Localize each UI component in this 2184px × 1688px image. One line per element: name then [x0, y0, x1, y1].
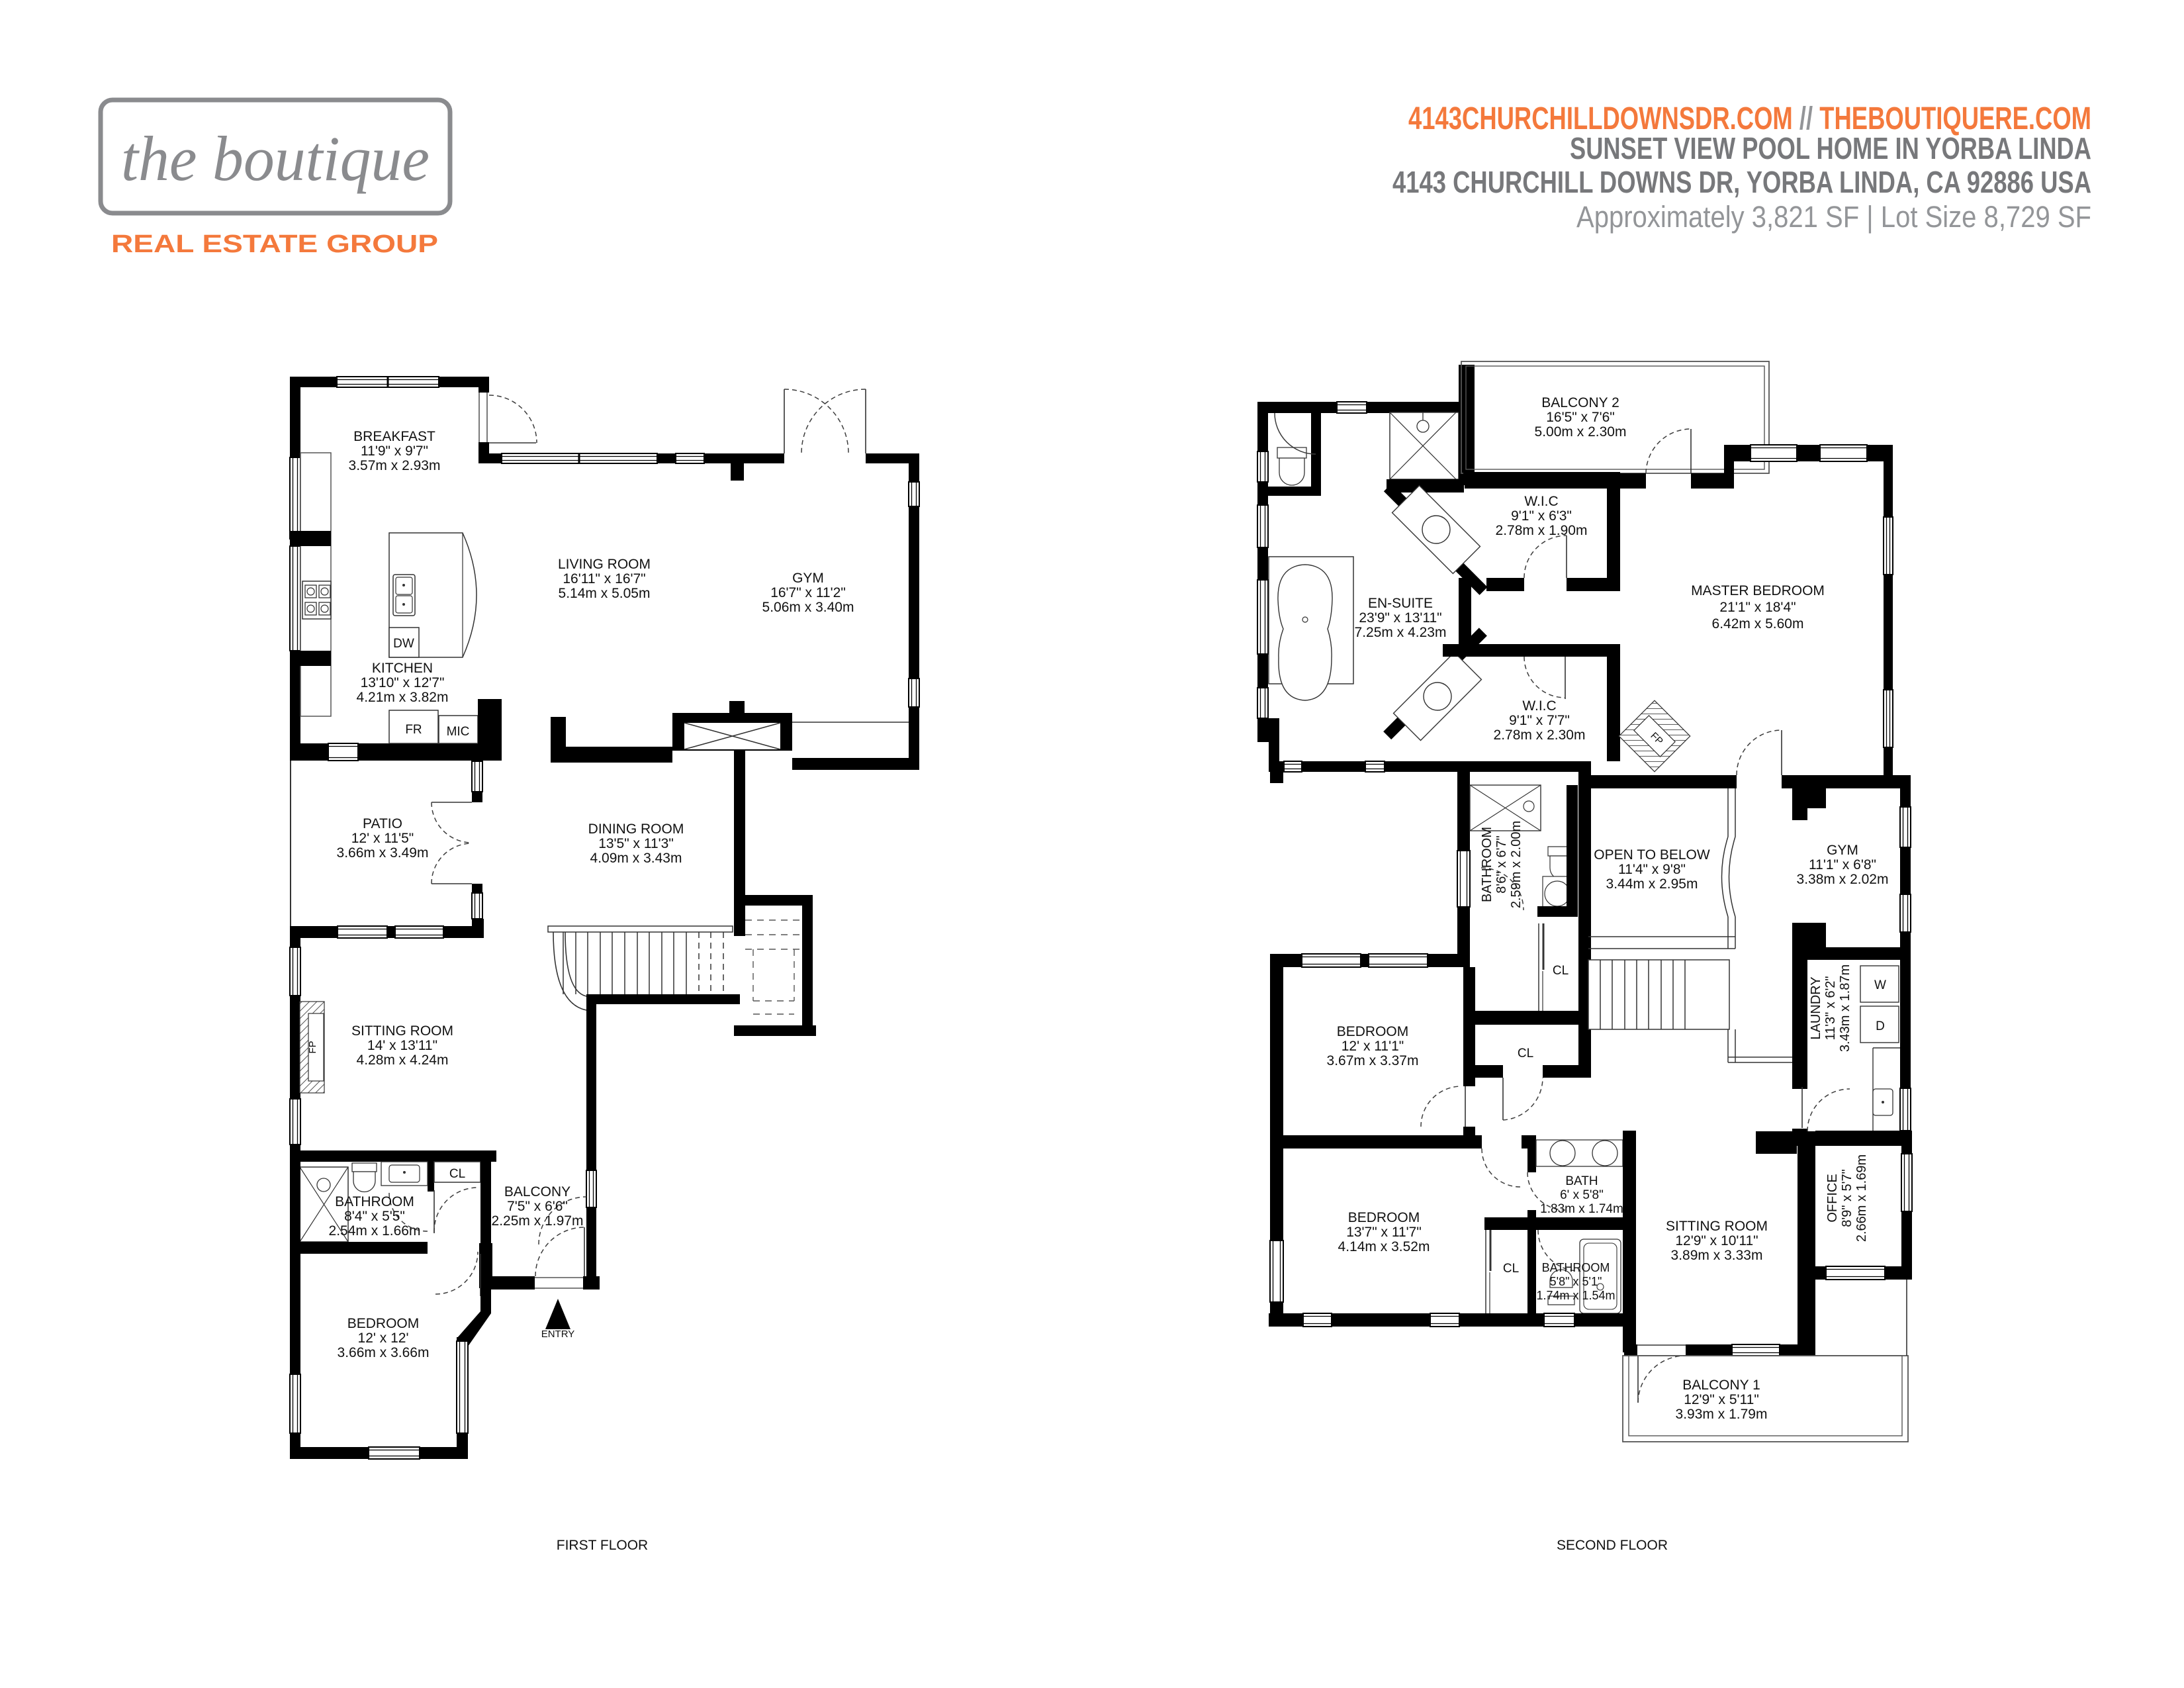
svg-text:GYM: GYM — [1827, 843, 1858, 858]
svg-text:3.67m x 3.37m: 3.67m x 3.37m — [1327, 1053, 1419, 1068]
svg-text:BEDROOM: BEDROOM — [1337, 1024, 1409, 1039]
svg-text:2.59m x 2.00m: 2.59m x 2.00m — [1509, 821, 1524, 908]
svg-text:4.21m x 3.82m: 4.21m x 3.82m — [357, 690, 449, 705]
svg-text:MIC: MIC — [447, 725, 470, 739]
svg-text:16'5" x 7'6": 16'5" x 7'6" — [1546, 410, 1615, 425]
svg-text:DW: DW — [393, 637, 414, 651]
svg-text:W: W — [1874, 978, 1886, 992]
svg-text:4.28m x 4.24m: 4.28m x 4.24m — [357, 1053, 449, 1068]
svg-text:11'4" x 9'8": 11'4" x 9'8" — [1618, 862, 1686, 877]
svg-text:2.78m x 2.30m: 2.78m x 2.30m — [1494, 727, 1586, 743]
svg-text:8'6" x 6'7": 8'6" x 6'7" — [1494, 835, 1509, 893]
svg-text:2.25m x 1.97m: 2.25m x 1.97m — [492, 1213, 584, 1229]
svg-text:3.38m x 2.02m: 3.38m x 2.02m — [1797, 872, 1889, 887]
svg-text:KITCHEN: KITCHEN — [372, 661, 433, 676]
svg-text:5'8" x 5'1": 5'8" x 5'1" — [1550, 1275, 1602, 1288]
svg-text:SECOND FLOOR: SECOND FLOOR — [1557, 1538, 1668, 1553]
svg-text:BEDROOM: BEDROOM — [347, 1316, 420, 1331]
svg-text:4.14m x 3.52m: 4.14m x 3.52m — [1338, 1239, 1430, 1254]
svg-text:23'9" x 13'11": 23'9" x 13'11" — [1359, 610, 1441, 626]
svg-text:11'9" x 9'7": 11'9" x 9'7" — [361, 444, 428, 459]
svg-text:9'1" x 7'7": 9'1" x 7'7" — [1509, 713, 1570, 728]
svg-text:DINING ROOM: DINING ROOM — [588, 821, 684, 837]
svg-text:7.25m x 4.23m: 7.25m x 4.23m — [1355, 625, 1447, 640]
svg-text:12'9" x 10'11": 12'9" x 10'11" — [1675, 1233, 1758, 1248]
svg-text:3.89m x 3.33m: 3.89m x 3.33m — [1671, 1248, 1763, 1263]
svg-text:6' x 5'8": 6' x 5'8" — [1560, 1188, 1604, 1202]
svg-text:3.43m x 1.87m: 3.43m x 1.87m — [1838, 964, 1852, 1052]
svg-text:12'9" x 5'11": 12'9" x 5'11" — [1684, 1392, 1759, 1407]
svg-text:CL: CL — [1503, 1262, 1519, 1276]
svg-text:BREAKFAST: BREAKFAST — [353, 429, 435, 444]
svg-text:21'1" x 18'4": 21'1" x 18'4" — [1719, 600, 1796, 615]
svg-text:CL: CL — [1518, 1047, 1533, 1060]
svg-text:2.78m x 1.90m: 2.78m x 1.90m — [1496, 523, 1588, 538]
svg-text:FR: FR — [405, 723, 422, 737]
svg-text:5.06m x 3.40m: 5.06m x 3.40m — [762, 600, 854, 615]
svg-text:12' x 11'1": 12' x 11'1" — [1342, 1039, 1404, 1054]
svg-text:9'1" x 6'3": 9'1" x 6'3" — [1511, 508, 1572, 524]
svg-text:5.14m x 5.05m: 5.14m x 5.05m — [559, 586, 651, 601]
svg-text:8'4" x 5'5": 8'4" x 5'5" — [344, 1209, 405, 1224]
svg-text:BATHROOM: BATHROOM — [335, 1194, 414, 1209]
svg-text:11'3" x 6'2": 11'3" x 6'2" — [1823, 976, 1838, 1040]
svg-text:SITTING ROOM: SITTING ROOM — [1666, 1219, 1768, 1234]
svg-text:13'7" x 11'7": 13'7" x 11'7" — [1346, 1225, 1422, 1240]
svg-text:BATH: BATH — [1565, 1174, 1598, 1188]
svg-text:CL: CL — [449, 1167, 465, 1181]
svg-text:11'1" x 6'8": 11'1" x 6'8" — [1809, 857, 1876, 872]
svg-text:BALCONY: BALCONY — [504, 1184, 570, 1199]
svg-text:PATIO: PATIO — [363, 816, 402, 831]
svg-text:14' x 13'11": 14' x 13'11" — [367, 1038, 437, 1053]
svg-text:W.I.C: W.I.C — [1522, 698, 1556, 714]
svg-text:3.66m x 3.66m: 3.66m x 3.66m — [338, 1345, 430, 1360]
svg-text:the boutique: the boutique — [121, 123, 430, 194]
svg-text:13'10" x 12'7": 13'10" x 12'7" — [361, 675, 445, 690]
svg-text:MASTER BEDROOM: MASTER BEDROOM — [1691, 583, 1825, 598]
svg-text:OFFICE: OFFICE — [1825, 1174, 1840, 1222]
svg-text:BEDROOM: BEDROOM — [1348, 1210, 1420, 1225]
svg-text:2.54m x 1.66m: 2.54m x 1.66m — [329, 1223, 421, 1239]
svg-text:13'5" x 11'3": 13'5" x 11'3" — [598, 836, 674, 851]
svg-text:FIRST FLOOR: FIRST FLOOR — [557, 1538, 648, 1553]
svg-text:12' x 12': 12' x 12' — [358, 1331, 409, 1346]
svg-text:16'7" x 11'2": 16'7" x 11'2" — [770, 585, 846, 600]
svg-text:FP: FP — [307, 1041, 318, 1053]
svg-text:SITTING ROOM: SITTING ROOM — [351, 1023, 453, 1039]
svg-text:3.66m x 3.49m: 3.66m x 3.49m — [337, 845, 429, 861]
svg-text:BALCONY 1: BALCONY 1 — [1682, 1378, 1760, 1393]
svg-text:D: D — [1876, 1019, 1885, 1033]
svg-text:16'11" x 16'7": 16'11" x 16'7" — [563, 571, 645, 586]
svg-text:3.57m x 2.93m: 3.57m x 2.93m — [349, 458, 441, 473]
svg-text:SUNSET VIEW POOL HOME IN YORBA: SUNSET VIEW POOL HOME IN YORBA LINDA — [1570, 131, 2091, 165]
svg-text:2.66m x 1.69m: 2.66m x 1.69m — [1854, 1154, 1869, 1242]
svg-text:1.83m x 1.74m: 1.83m x 1.74m — [1540, 1202, 1623, 1216]
svg-text:W.I.C: W.I.C — [1524, 494, 1558, 509]
svg-text:8'9" x 5'7": 8'9" x 5'7" — [1840, 1169, 1854, 1227]
svg-text:GYM: GYM — [792, 571, 824, 586]
svg-text:6.42m x 5.60m: 6.42m x 5.60m — [1712, 616, 1804, 632]
svg-text:OPEN TO BELOW: OPEN TO BELOW — [1594, 847, 1710, 863]
svg-text:3.44m x 2.95m: 3.44m x 2.95m — [1606, 876, 1698, 892]
svg-text:12' x 11'5": 12' x 11'5" — [351, 831, 414, 846]
svg-text:CL: CL — [1553, 964, 1569, 978]
svg-text:BALCONY 2: BALCONY 2 — [1541, 395, 1619, 410]
svg-text:REAL ESTATE GROUP: REAL ESTATE GROUP — [111, 230, 438, 258]
svg-text:Approximately 3,821 SF | Lot S: Approximately 3,821 SF | Lot Size 8,729 … — [1576, 200, 2091, 234]
svg-text:4.09m x 3.43m: 4.09m x 3.43m — [590, 851, 682, 866]
svg-text:BATHROOM: BATHROOM — [1480, 827, 1494, 902]
svg-text:EN-SUITE: EN-SUITE — [1368, 596, 1433, 611]
svg-text:LIVING ROOM: LIVING ROOM — [558, 557, 651, 572]
svg-text:3.93m x 1.79m: 3.93m x 1.79m — [1676, 1407, 1768, 1422]
svg-text:LAUNDRY: LAUNDRY — [1809, 976, 1823, 1039]
svg-text:BATHROOM: BATHROOM — [1542, 1261, 1610, 1274]
svg-text:ENTRY: ENTRY — [541, 1329, 575, 1340]
svg-text:5.00m x 2.30m: 5.00m x 2.30m — [1535, 424, 1627, 440]
svg-text:7'5" x 6'6": 7'5" x 6'6" — [507, 1199, 568, 1214]
svg-text:4143 CHURCHILL DOWNS DR, YORBA: 4143 CHURCHILL DOWNS DR, YORBA LINDA, CA… — [1392, 165, 2091, 199]
svg-text:1.74m x 1.54m: 1.74m x 1.54m — [1536, 1289, 1615, 1302]
